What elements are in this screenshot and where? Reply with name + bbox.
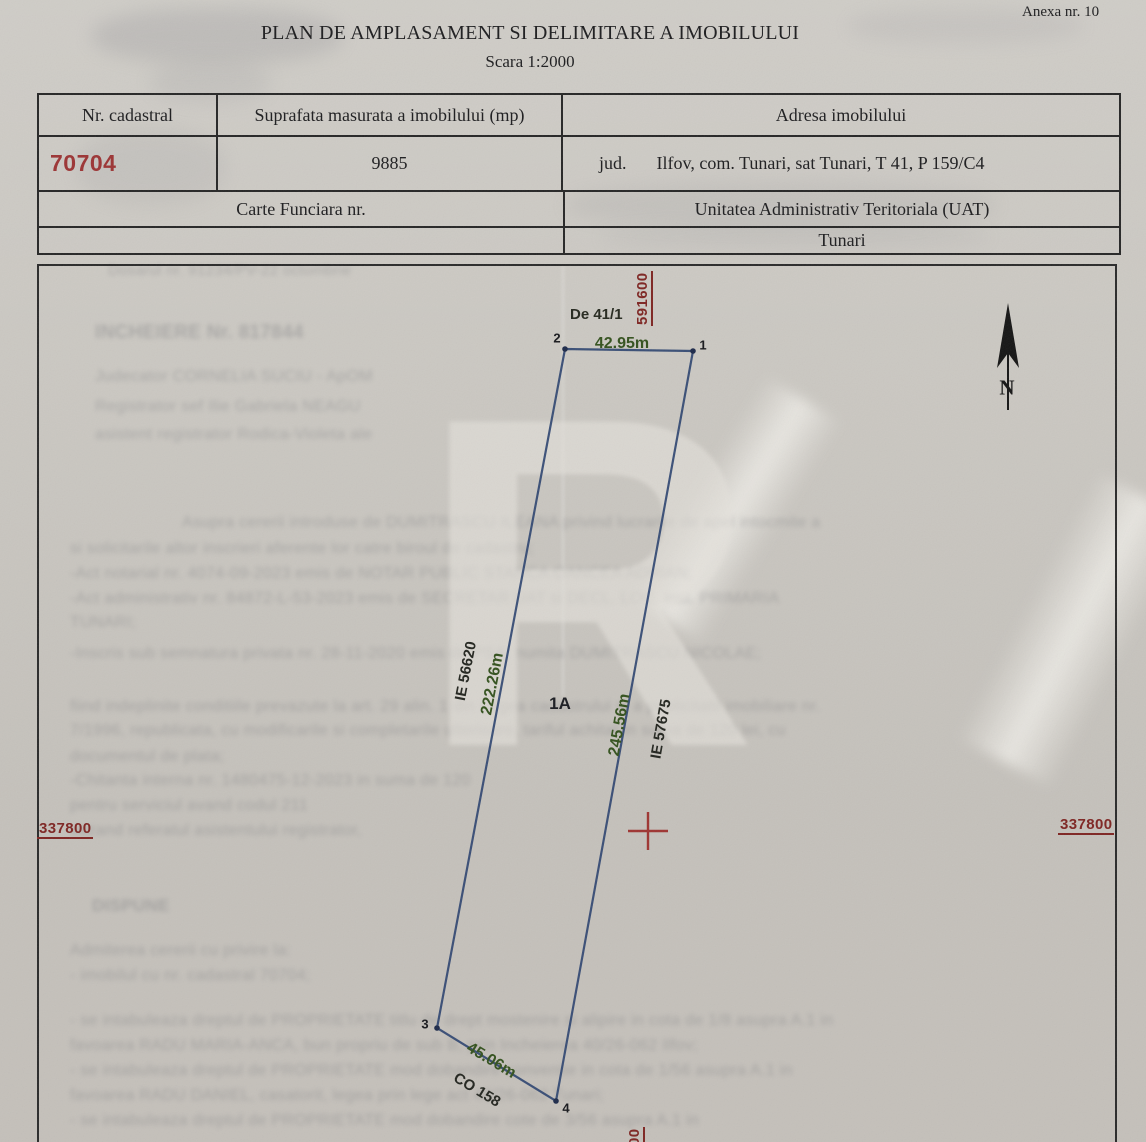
grid-y-label-right: 337800 (1058, 816, 1114, 835)
header-adresa: Adresa imobilului (563, 95, 1119, 135)
annex-number: Anexa nr. 10 (1022, 4, 1099, 21)
uat-value: Tunari (565, 228, 1119, 253)
scanned-cadastral-document: Dosarul nr. 91234/PV-22 octombrieINCHEIE… (0, 0, 1146, 1142)
point-3-label: 3 (421, 1017, 428, 1032)
top-edge-length: 42.95m (595, 335, 649, 353)
table-uat-row: Tunari (39, 228, 1119, 253)
table-value-row: 70704 9885 jud. Ilfov, com. Tunari, sat … (39, 137, 1119, 192)
address-text: Ilfov, com. Tunari, sat Tunari, T 41, P … (657, 153, 985, 174)
north-letter: N (999, 376, 1014, 401)
carte-funciara-label: Carte Funciara nr. (39, 192, 565, 226)
carte-funciara-value (39, 228, 565, 253)
county-prefix: jud. (599, 153, 627, 174)
header-nr-cadastral: Nr. cadastral (39, 95, 218, 135)
parcel-number-label: 1A (549, 694, 571, 714)
cadastral-number: 70704 (39, 137, 218, 190)
property-address: jud. Ilfov, com. Tunari, sat Tunari, T 4… (563, 137, 1119, 190)
table-labels-row: Carte Funciara nr. Unitatea Administrati… (39, 192, 1119, 228)
cadastral-table: Nr. cadastral Suprafata masurata a imobi… (37, 93, 1121, 255)
grid-x-label-bottom: 591600 (626, 1127, 645, 1142)
point-2-label: 2 (553, 331, 560, 346)
map-scale: Scara 1:2000 (180, 52, 880, 72)
point-1-label: 1 (699, 338, 706, 353)
uat-label: Unitatea Administrativ Teritoriala (UAT) (565, 192, 1119, 226)
grid-x-label-top: 591600 (634, 271, 653, 326)
table-header-row: Nr. cadastral Suprafata masurata a imobi… (39, 95, 1119, 137)
header-suprafata: Suprafata masurata a imobilului (mp) (218, 95, 563, 135)
page-title: PLAN DE AMPLASAMENT SI DELIMITARE A IMOB… (180, 22, 880, 45)
grid-y-label-left: 337800 (37, 820, 93, 839)
road-label: De 41/1 (570, 306, 623, 323)
plan-map-frame (37, 264, 1117, 1142)
point-4-label: 4 (562, 1101, 569, 1116)
measured-area: 9885 (218, 137, 563, 190)
